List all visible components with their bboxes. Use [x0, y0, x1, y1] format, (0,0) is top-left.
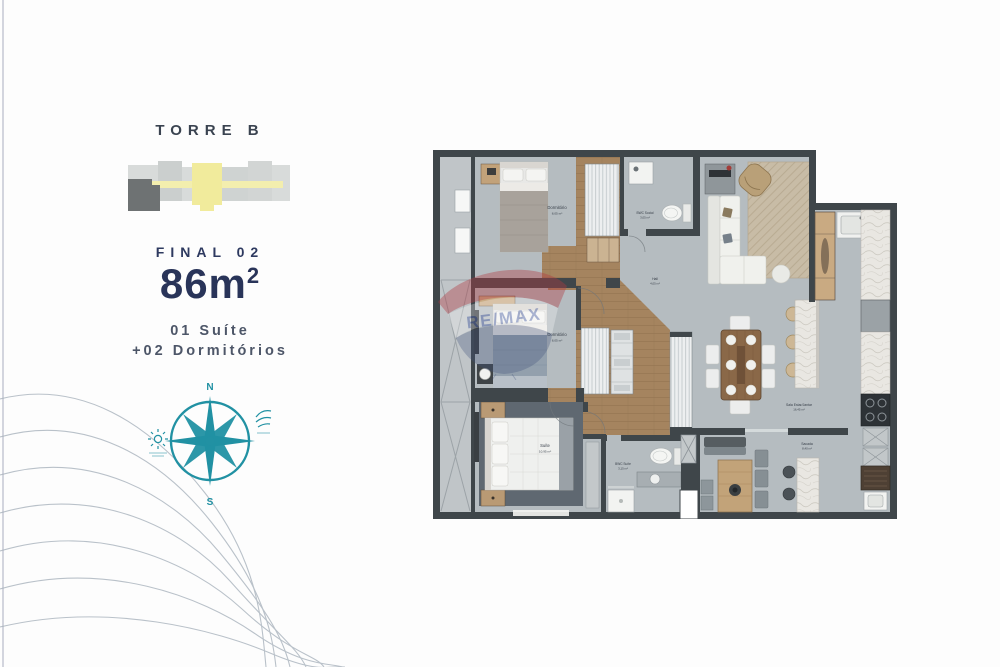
shower — [608, 486, 634, 512]
room-area: 4,05 m² — [650, 282, 660, 286]
toilet-tank — [674, 448, 681, 465]
window — [513, 510, 569, 516]
counter — [861, 210, 890, 300]
compass: N S — [110, 379, 310, 516]
feature-dorms: +02 Dormitórios — [110, 342, 310, 362]
bed — [485, 418, 573, 490]
west-facade-strip — [440, 157, 475, 512]
floor-plan: Dormitório 8,05 m² Dormitório 8,05 m² Su… — [433, 150, 897, 524]
cooktop — [861, 394, 890, 426]
balcony-table — [718, 460, 752, 512]
basin — [650, 474, 660, 484]
bed — [493, 304, 547, 388]
pillow — [722, 207, 733, 218]
toilet-tank — [683, 204, 691, 222]
area-number: 86m — [160, 260, 247, 307]
cushion — [701, 496, 713, 510]
pillow — [722, 233, 732, 243]
room-label: Suíte — [540, 443, 550, 448]
page: TORRE B FINAL 02 86m2 01 Suíte +02 Dormi… — [0, 0, 1000, 667]
bench-seat — [704, 447, 746, 455]
left-edge-line — [2, 0, 4, 667]
window — [455, 190, 470, 212]
bed — [500, 162, 548, 252]
suite-bedroom — [474, 402, 599, 516]
bar-counter — [797, 458, 819, 512]
unit-features: 01 Suíte +02 Dormitórios — [110, 322, 310, 361]
room-area: 16,45 m² — [793, 408, 804, 412]
room-area: 10,95 m² — [539, 450, 551, 454]
lamp — [480, 369, 491, 380]
tower-title: TORRE B — [110, 122, 310, 139]
window — [455, 228, 470, 253]
toilet — [662, 205, 682, 221]
room-area: 8,05 m² — [552, 212, 563, 216]
counter — [861, 332, 890, 394]
room-label: BWC Suíte — [615, 462, 631, 466]
tv-panel — [474, 310, 479, 354]
stool — [783, 488, 795, 500]
room-label: BWC Social — [636, 211, 653, 215]
room-label: Sacada — [801, 442, 813, 446]
room-label: Sala Estar/Jantar — [786, 403, 813, 407]
tv-panel — [474, 412, 479, 462]
sunset-icon — [148, 429, 168, 456]
waves-icon — [256, 411, 271, 433]
area-exponent: 2 — [247, 263, 260, 288]
unit-info-panel: TORRE B FINAL 02 86m2 01 Suíte +02 Dormi… — [110, 122, 310, 516]
stool — [783, 466, 795, 478]
living-room — [705, 160, 812, 284]
closet — [581, 328, 609, 394]
grill — [861, 466, 890, 490]
room-label: Dormitório — [547, 205, 567, 210]
room-area: 3,15 m² — [618, 467, 628, 471]
feature-suite: 01 Suíte — [110, 322, 310, 342]
key-plan-core — [192, 163, 222, 205]
bench-back — [704, 437, 746, 447]
key-plan-modules — [128, 161, 290, 211]
ottoman — [772, 265, 790, 283]
room-area: 8,40 m² — [802, 447, 812, 451]
tall-cabinet — [815, 212, 835, 300]
compass-north-label: N — [206, 382, 213, 393]
closet — [586, 442, 599, 508]
room-label: Hall — [652, 277, 658, 281]
key-plan — [125, 153, 295, 217]
area-value: 86m2 — [110, 262, 310, 306]
balcony-sink — [864, 492, 887, 510]
dresser — [587, 238, 619, 262]
sliding-door — [745, 429, 788, 432]
room-label: Dormitório — [547, 332, 567, 337]
balcony-chairs — [755, 450, 768, 508]
tv-unit — [705, 164, 735, 194]
kitchen-island — [786, 300, 819, 388]
final-label: FINAL 02 — [110, 244, 310, 260]
vanity — [629, 162, 653, 184]
compass-south-label: S — [207, 497, 214, 508]
slat-divider — [670, 332, 692, 432]
cushion — [701, 480, 713, 494]
compass-star — [165, 396, 255, 486]
wardrobe — [585, 164, 619, 236]
shelf-unit — [611, 330, 633, 394]
appliance — [861, 300, 890, 332]
room-area: 8,05 m² — [552, 339, 563, 343]
room-area: 3,05 m² — [640, 216, 650, 220]
